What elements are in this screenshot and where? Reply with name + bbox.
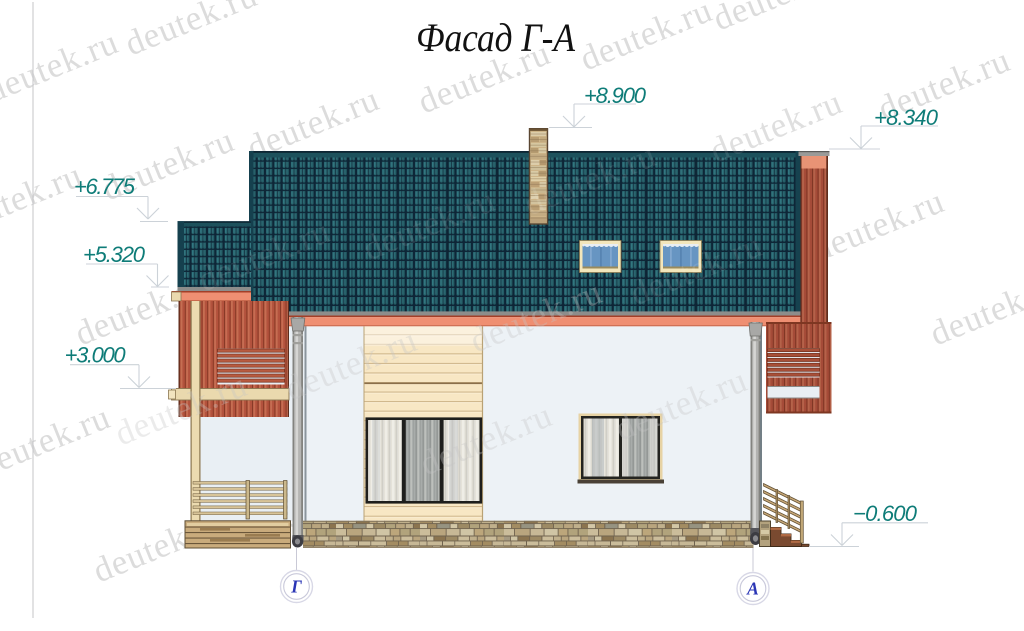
svg-text:+6.775: +6.775 <box>74 174 136 199</box>
svg-text:+3.000: +3.000 <box>65 343 127 368</box>
svg-text:Г: Г <box>290 577 302 597</box>
svg-text:А: А <box>746 579 759 599</box>
svg-text:−0.600: −0.600 <box>853 501 918 526</box>
svg-text:Фасад Г-А: Фасад Г-А <box>416 15 575 60</box>
svg-text:+8.340: +8.340 <box>874 105 939 130</box>
svg-text:+8.900: +8.900 <box>584 83 647 108</box>
svg-text:+5.320: +5.320 <box>83 242 146 267</box>
